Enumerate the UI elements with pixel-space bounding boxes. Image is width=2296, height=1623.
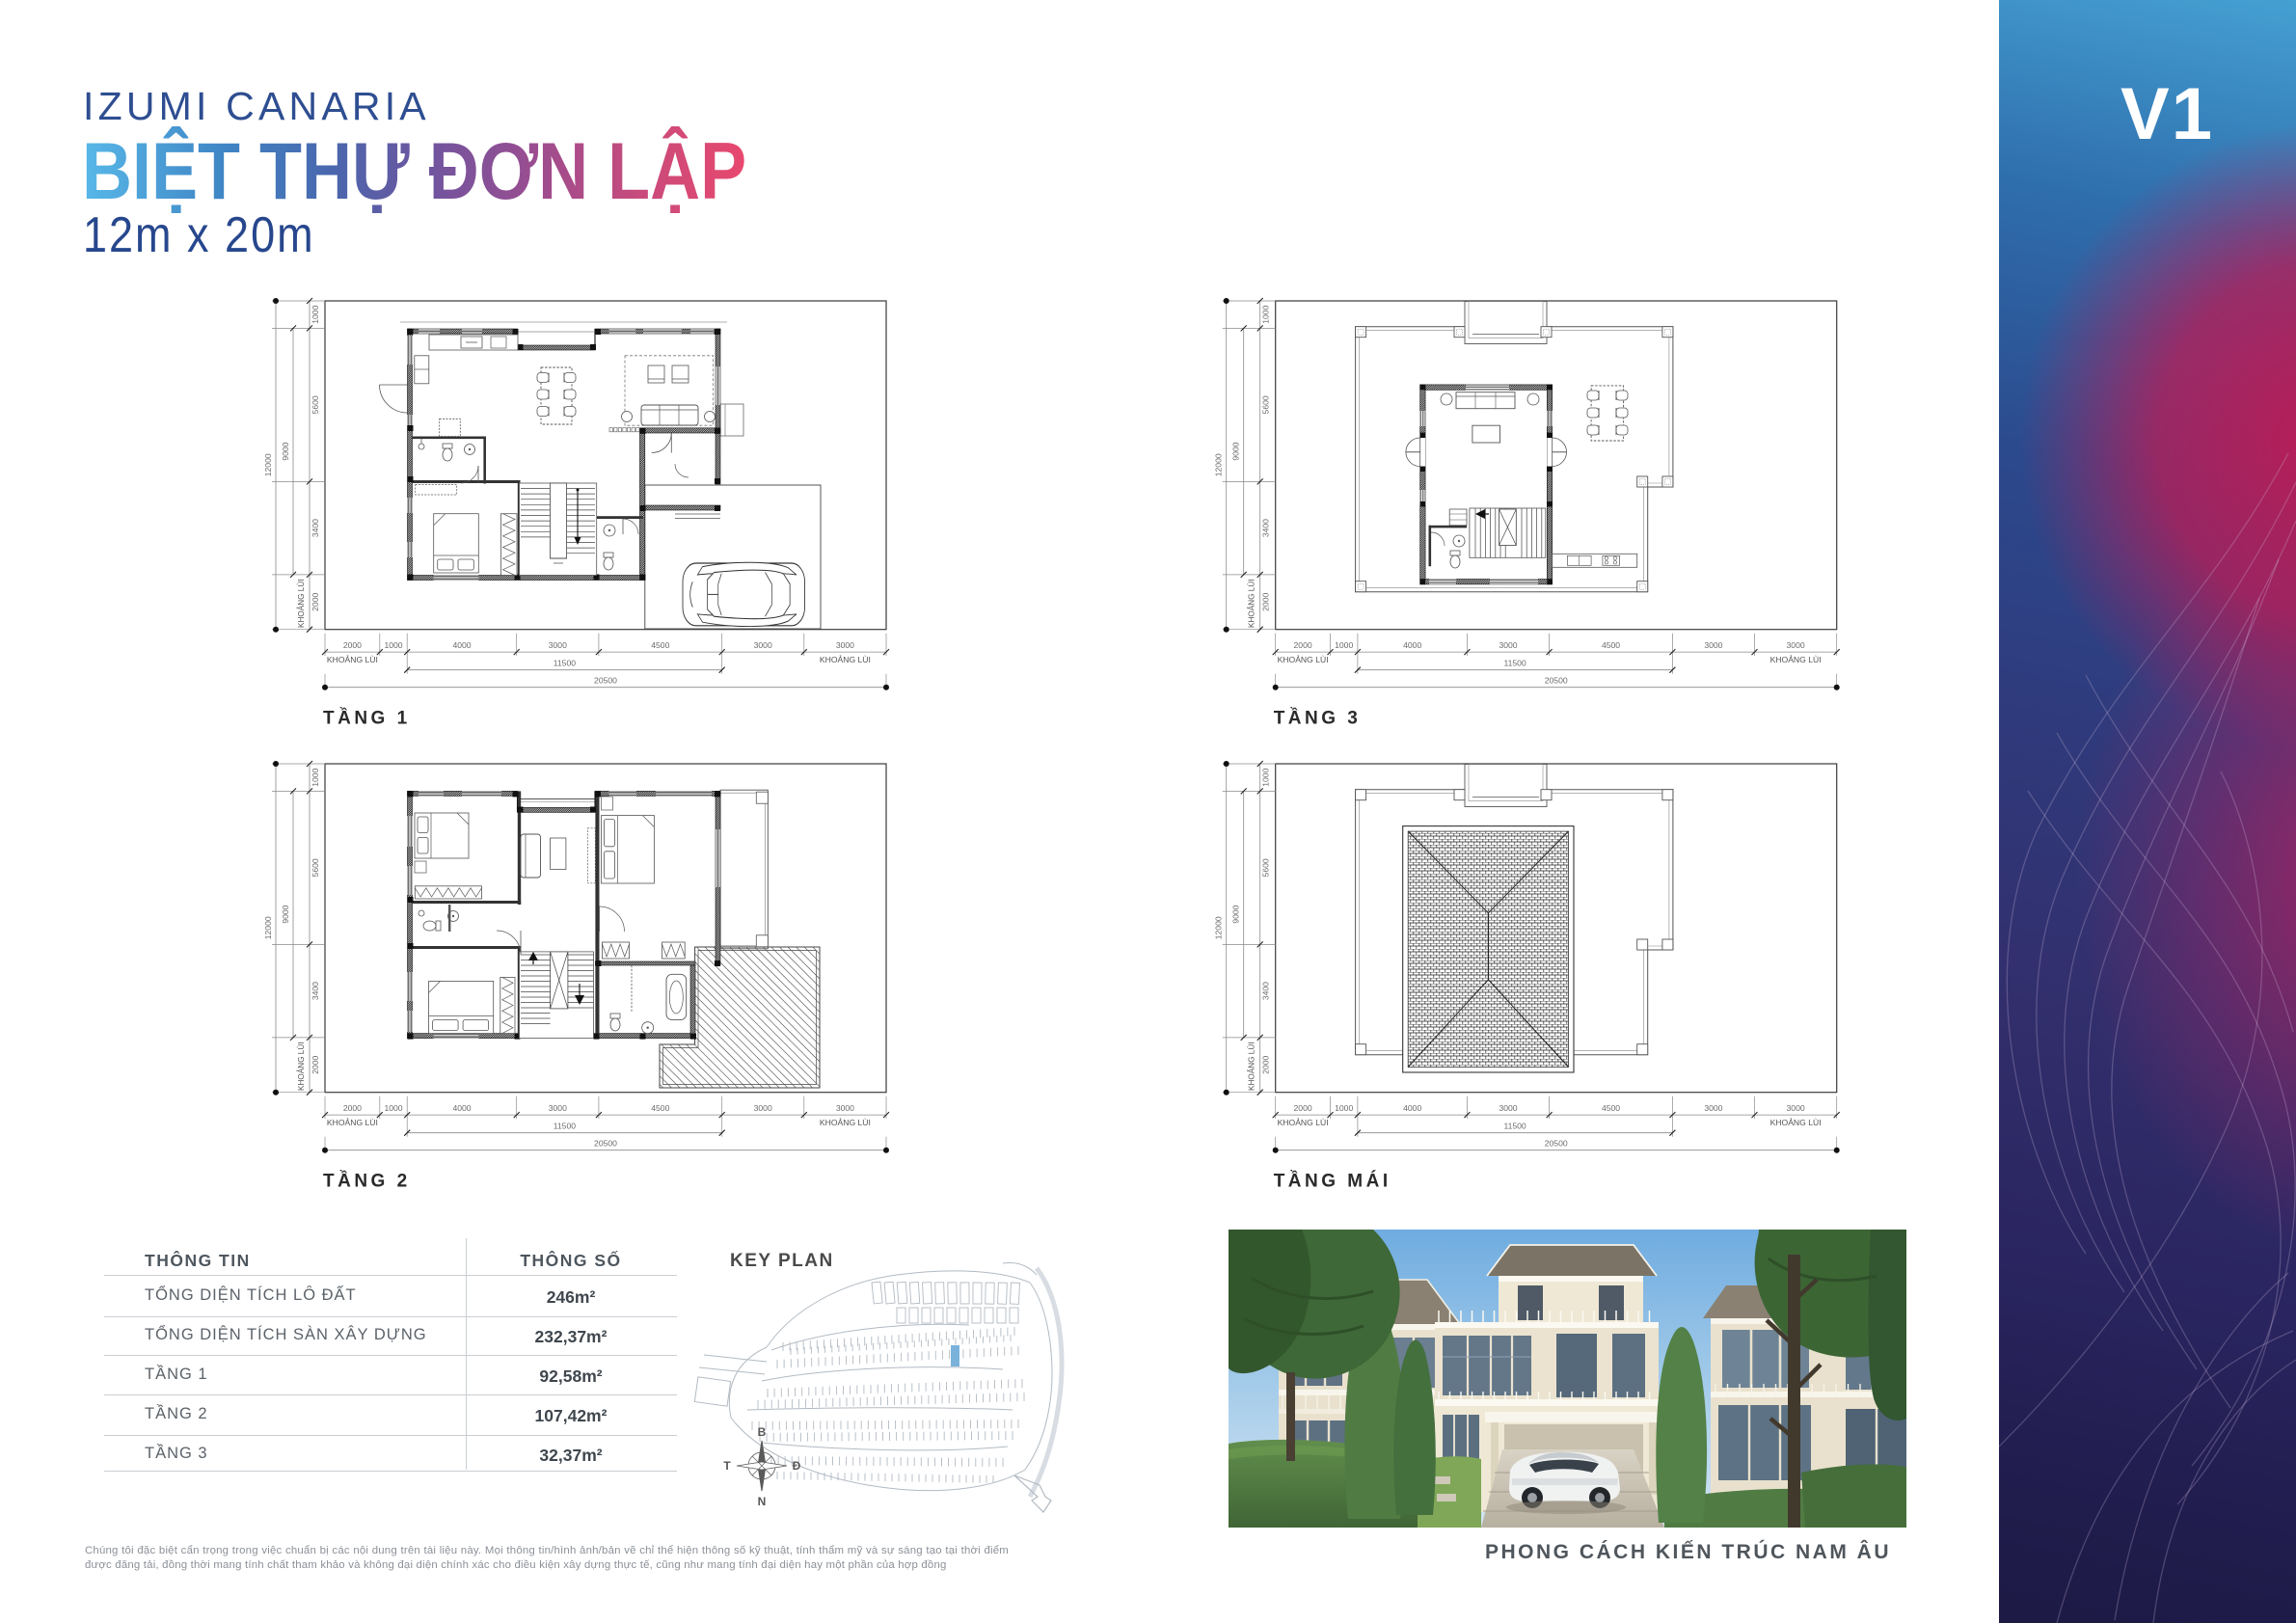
svg-text:KHOẢNG LÙI: KHOẢNG LÙI bbox=[295, 579, 306, 628]
svg-text:1000: 1000 bbox=[311, 305, 320, 323]
svg-text:3000: 3000 bbox=[1787, 1103, 1805, 1113]
svg-text:3000: 3000 bbox=[754, 640, 772, 650]
svg-text:12000: 12000 bbox=[1214, 453, 1224, 476]
svg-text:T: T bbox=[723, 1459, 731, 1473]
svg-text:KHOẢNG LÙI: KHOẢNG LÙI bbox=[1278, 654, 1329, 664]
svg-text:1000: 1000 bbox=[311, 768, 320, 786]
svg-text:9000: 9000 bbox=[281, 442, 290, 460]
svg-text:2000: 2000 bbox=[343, 1103, 362, 1113]
svg-text:3000: 3000 bbox=[754, 1103, 772, 1113]
svg-text:2000: 2000 bbox=[1294, 1103, 1312, 1113]
svg-text:3000: 3000 bbox=[549, 1103, 567, 1113]
svg-text:1000: 1000 bbox=[1261, 768, 1271, 786]
svg-text:2000: 2000 bbox=[1294, 640, 1312, 650]
svg-text:2000: 2000 bbox=[1261, 1056, 1271, 1074]
svg-text:KHOẢNG LÙI: KHOẢNG LÙI bbox=[295, 1041, 306, 1091]
svg-text:3000: 3000 bbox=[836, 1103, 854, 1113]
svg-text:KHOẢNG LÙI: KHOẢNG LÙI bbox=[820, 654, 871, 664]
svg-text:5600: 5600 bbox=[1261, 395, 1271, 414]
svg-text:5600: 5600 bbox=[311, 858, 320, 877]
svg-text:12000: 12000 bbox=[263, 453, 273, 476]
svg-text:2000: 2000 bbox=[1261, 593, 1271, 611]
svg-text:2000: 2000 bbox=[311, 593, 320, 611]
svg-text:4000: 4000 bbox=[1403, 1103, 1421, 1113]
svg-text:3400: 3400 bbox=[1261, 982, 1271, 1000]
svg-text:1000: 1000 bbox=[384, 640, 402, 650]
svg-text:12000: 12000 bbox=[1214, 916, 1224, 939]
svg-text:3400: 3400 bbox=[311, 519, 320, 537]
svg-text:4500: 4500 bbox=[651, 640, 669, 650]
svg-text:11500: 11500 bbox=[554, 1122, 576, 1131]
svg-text:9000: 9000 bbox=[1231, 442, 1241, 460]
svg-text:3400: 3400 bbox=[311, 982, 320, 1000]
svg-text:1000: 1000 bbox=[1335, 1103, 1353, 1113]
svg-text:11500: 11500 bbox=[554, 659, 576, 668]
svg-text:KHOẢNG LÙI: KHOẢNG LÙI bbox=[1770, 654, 1822, 664]
svg-text:KHOẢNG LÙI: KHOẢNG LÙI bbox=[1770, 1117, 1822, 1127]
svg-text:3000: 3000 bbox=[1787, 640, 1805, 650]
svg-text:KEY PLAN: KEY PLAN bbox=[730, 1251, 834, 1271]
svg-text:B: B bbox=[758, 1425, 767, 1439]
svg-text:3000: 3000 bbox=[1499, 1103, 1517, 1113]
svg-text:TẦNG 1: TẦNG 1 bbox=[323, 708, 411, 729]
svg-text:KHOẢNG LÙI: KHOẢNG LÙI bbox=[327, 1117, 378, 1127]
svg-text:4500: 4500 bbox=[651, 1103, 669, 1113]
svg-text:4000: 4000 bbox=[452, 1103, 471, 1113]
svg-text:20500: 20500 bbox=[1545, 1139, 1568, 1149]
svg-text:TẦNG 2: TẦNG 2 bbox=[323, 1171, 411, 1192]
svg-text:3000: 3000 bbox=[1499, 640, 1517, 650]
svg-text:4500: 4500 bbox=[1602, 1103, 1620, 1113]
svg-text:5600: 5600 bbox=[1261, 858, 1271, 877]
svg-text:KHOẢNG LÙI: KHOẢNG LÙI bbox=[1246, 579, 1256, 628]
svg-text:4500: 4500 bbox=[1602, 640, 1620, 650]
svg-text:1000: 1000 bbox=[384, 1103, 402, 1113]
svg-text:N: N bbox=[758, 1495, 767, 1508]
svg-text:12000: 12000 bbox=[263, 916, 273, 939]
svg-text:KHOẢNG LÙI: KHOẢNG LÙI bbox=[1278, 1117, 1329, 1127]
svg-text:9000: 9000 bbox=[281, 905, 290, 923]
svg-text:3000: 3000 bbox=[1704, 640, 1722, 650]
svg-text:Đ: Đ bbox=[793, 1459, 801, 1473]
svg-text:1000: 1000 bbox=[1261, 305, 1271, 323]
svg-text:5600: 5600 bbox=[311, 395, 320, 414]
svg-text:1000: 1000 bbox=[1335, 640, 1353, 650]
svg-text:KHOẢNG LÙI: KHOẢNG LÙI bbox=[820, 1117, 871, 1127]
svg-text:20500: 20500 bbox=[1545, 676, 1568, 686]
svg-text:4000: 4000 bbox=[1403, 640, 1421, 650]
svg-text:TẦNG 3: TẦNG 3 bbox=[1274, 708, 1362, 729]
svg-text:3000: 3000 bbox=[549, 640, 567, 650]
svg-text:11500: 11500 bbox=[1503, 1122, 1526, 1131]
svg-text:20500: 20500 bbox=[594, 1139, 617, 1149]
svg-text:3000: 3000 bbox=[836, 640, 854, 650]
svg-text:3000: 3000 bbox=[1704, 1103, 1722, 1113]
svg-text:2000: 2000 bbox=[311, 1056, 320, 1074]
svg-text:4000: 4000 bbox=[452, 640, 471, 650]
svg-text:2000: 2000 bbox=[343, 640, 362, 650]
svg-text:20500: 20500 bbox=[594, 676, 617, 686]
svg-text:KHOẢNG LÙI: KHOẢNG LÙI bbox=[1246, 1041, 1256, 1091]
svg-text:TẦNG MÁI: TẦNG MÁI bbox=[1274, 1171, 1391, 1192]
svg-text:9000: 9000 bbox=[1231, 905, 1241, 923]
svg-text:11500: 11500 bbox=[1503, 659, 1526, 668]
svg-text:KHOẢNG LÙI: KHOẢNG LÙI bbox=[327, 654, 378, 664]
svg-text:3400: 3400 bbox=[1261, 519, 1271, 537]
